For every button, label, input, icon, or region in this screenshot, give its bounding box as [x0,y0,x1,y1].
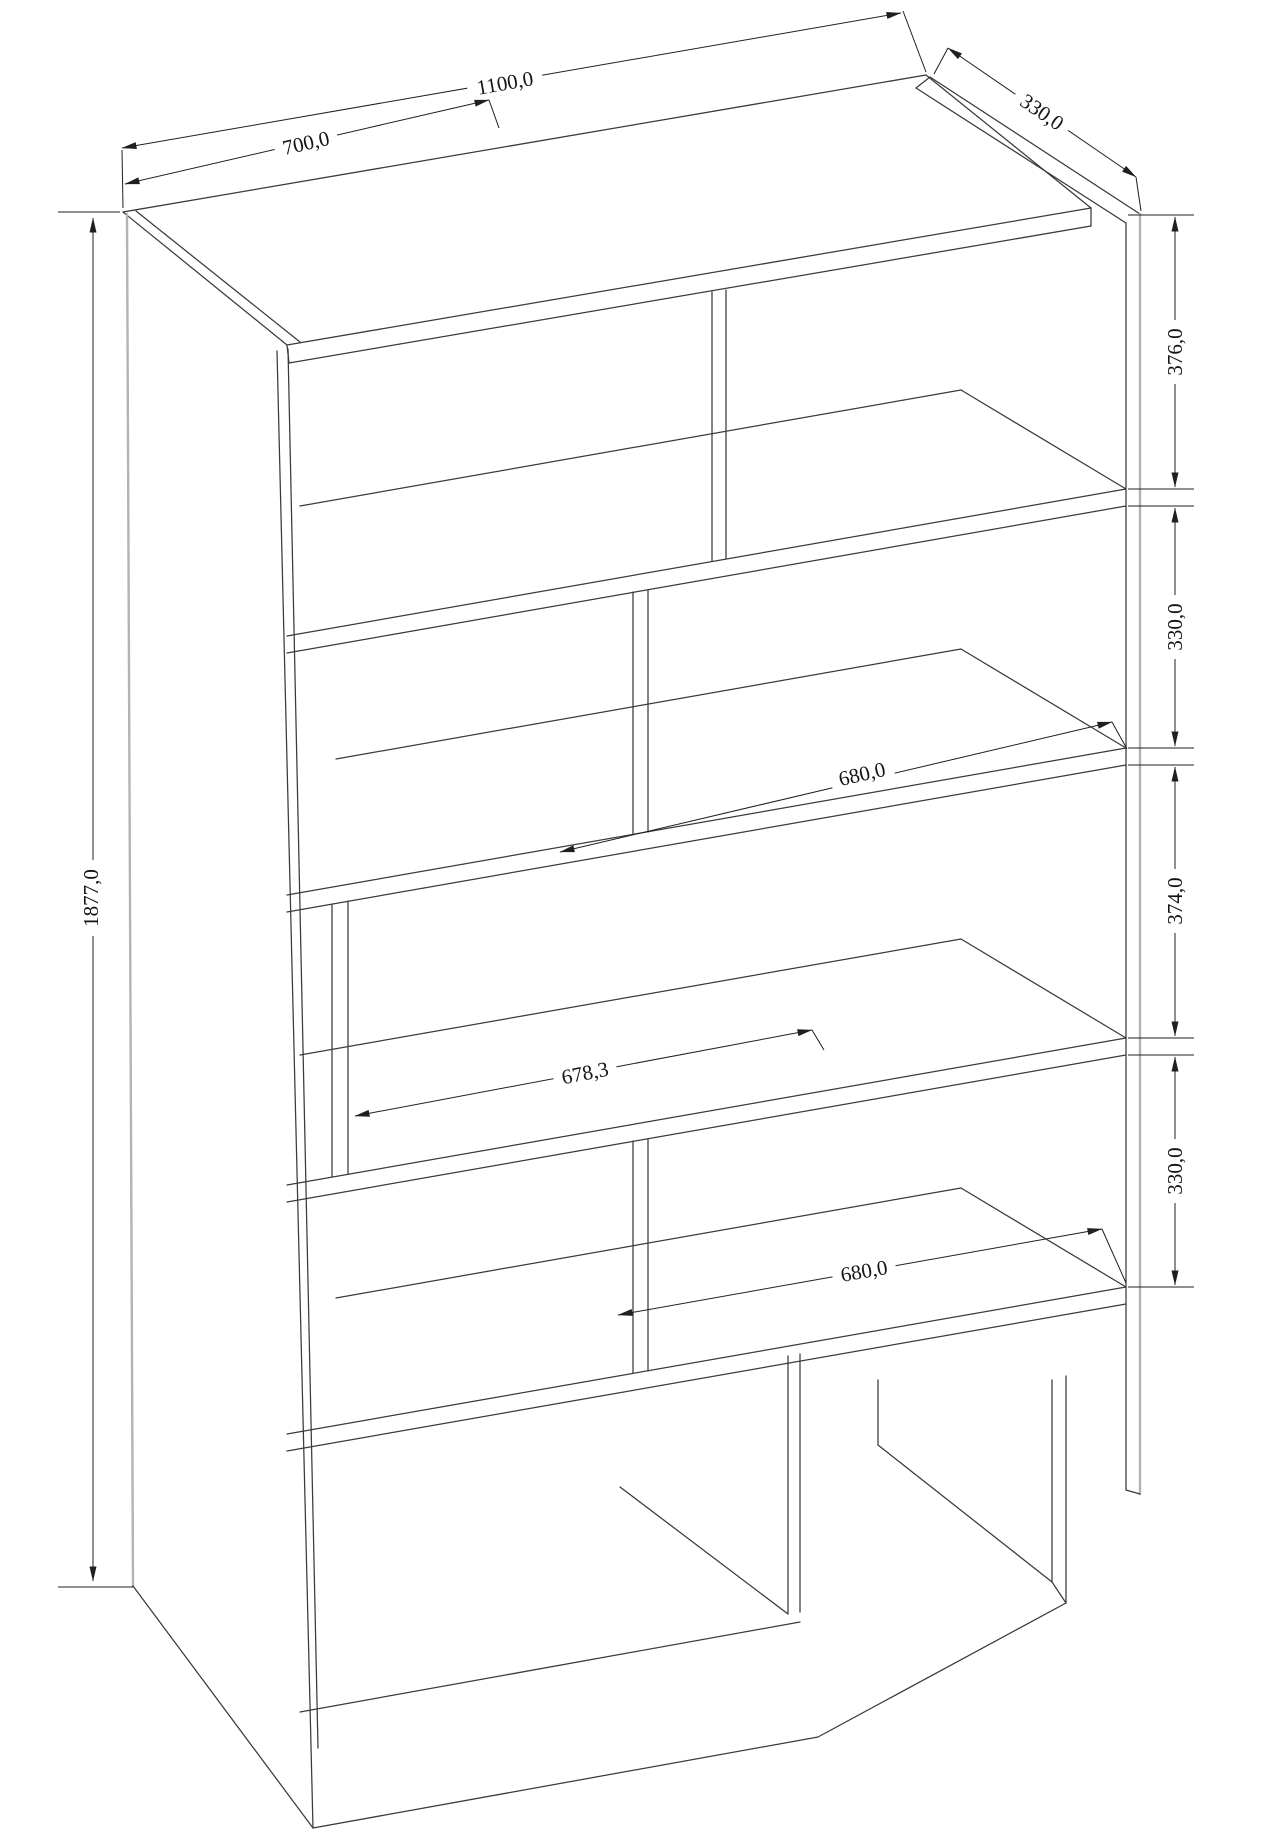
shelf-front-top-edge [287,1287,1126,1434]
divider-fourth-section [633,1139,648,1373]
divider-third-section [332,901,348,1177]
plinth-front-top-edge [300,1622,800,1712]
left-panel-front-inner-edge [288,349,318,1748]
technical-drawing-page: 1100,0 700,0 330,0 376,0 [0,0,1272,1839]
extension-line [489,100,499,128]
dim-label-right-seg-3: 374,0 [1163,869,1187,933]
divider-second-section [633,590,648,834]
top-panel-left-edge [123,212,287,345]
extension-line [1136,177,1141,211]
right-foot-bottom-edge [1052,1582,1066,1603]
extension-line [1112,722,1127,749]
dim-text: 376,0 [1163,328,1187,375]
top-panel-front-bottom-edge [289,226,1091,363]
dim-label-opening-lower: 680,0 [830,1254,897,1289]
dim-overall-width: 1100,0 [122,11,926,208]
base-connector-edge [818,1603,1066,1737]
shelf-front-top-edge [287,748,1126,895]
left-panel-bottom-edge [133,1586,313,1828]
right-side-panel [916,77,1140,1494]
shelf-right-depth-edge [961,939,1126,1038]
dim-label-opening-middle: 678,3 [551,1055,618,1091]
right-panel-bottom-stub [1126,1490,1140,1494]
dim-label-opening-upper: 680,0 [828,755,896,793]
shelf-front-top-edge [287,489,1126,636]
dim-text: 700,0 [280,126,331,160]
dim-label-overall-width: 1100,0 [465,65,544,102]
right-foot-depth-edge [878,1445,1052,1582]
extension-line [812,1030,824,1050]
bookshelf-dimension-drawing: 1100,0 700,0 330,0 376,0 [0,0,1272,1839]
shelf-front-bottom-edge [287,1055,1126,1202]
shelf-4 [287,1188,1126,1451]
dim-label-upper-section-width: 700,0 [272,124,340,162]
dim-text: 374,0 [1163,877,1187,924]
dim-label-overall-height: 1877,0 [79,860,103,936]
dim-label-right-seg-1: 376,0 [1163,320,1187,384]
dim-text: 680,0 [839,1255,890,1287]
top-panel [123,75,1091,363]
shelf-front-bottom-edge [287,1304,1126,1451]
dim-text: 680,0 [836,757,887,791]
shelf-right-depth-edge [961,649,1126,748]
dim-text: 330,0 [1163,1147,1187,1194]
shelf-1 [287,390,1126,653]
top-panel-right-edge [926,75,1091,208]
shelf-front-bottom-edge [287,506,1126,653]
dim-text: 1877,0 [79,869,103,927]
bottom-box-floor-depth-edge [620,1487,788,1614]
dim-upper-section-width: 700,0 [125,100,499,184]
divider-top-section [712,290,726,561]
dim-text: 330,0 [1163,603,1187,650]
shelf-back-edge [300,939,961,1055]
dim-depth: 330,0 [934,48,1141,211]
left-panel-thickness-edge [136,211,300,342]
dim-text: 678,3 [560,1057,611,1090]
shelf-front-bottom-edge [287,765,1126,912]
shelf-front-top-edge [287,1038,1126,1185]
top-panel-back-edge [123,75,926,212]
left-panel-back-edge [127,214,133,1586]
shelf-3 [287,939,1126,1202]
top-panel-front-top-edge [287,208,1091,345]
dim-label-right-seg-4: 330,0 [1163,1139,1187,1203]
left-panel-front-outer-edge [277,351,313,1828]
shelf-right-depth-edge [961,1188,1126,1287]
dim-overall-height: 1877,0 [58,212,133,1587]
plinth-front-bottom-edge [313,1737,818,1828]
shelf-back-edge [300,390,961,506]
bottom-cabinet [300,1354,1066,1828]
left-side-panel [127,214,318,1828]
shelf-right-depth-edge [961,390,1126,489]
extension-line [903,11,926,72]
dim-label-right-seg-2: 330,0 [1163,595,1187,659]
right-panel-top-stub [916,77,930,88]
dim-text: 1100,0 [475,66,535,100]
extension-line [934,48,948,74]
dim-label-depth: 330,0 [1009,84,1075,140]
shelf-2 [287,649,1126,912]
dim-right-chain: 376,0 330,0 374,0 330,0 [1128,215,1194,1287]
extension-line [122,150,123,208]
